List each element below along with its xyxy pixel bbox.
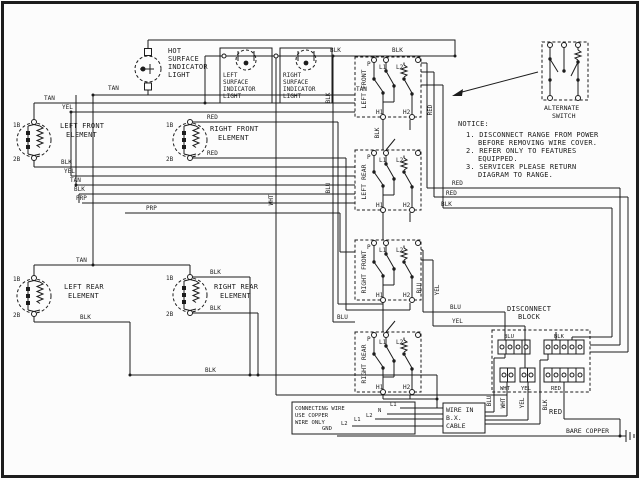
connecting-box-label: WIRE ONLY bbox=[295, 420, 325, 426]
wire-label: TAN bbox=[76, 257, 87, 264]
bx-cable-box: WIRE IN B.X. CABLE bbox=[443, 403, 485, 433]
wire-label: WHT bbox=[500, 397, 507, 408]
strip-label-wht: WHT bbox=[500, 386, 511, 392]
strip-label-yel: YEL bbox=[521, 386, 532, 392]
wire-label: RED bbox=[446, 190, 457, 197]
notice-line: BEFORE REMOVING WIRE COVER. bbox=[478, 139, 597, 147]
pin-label: P bbox=[367, 336, 371, 343]
hot-light-label: HOT bbox=[168, 47, 182, 55]
pin-label: L1 bbox=[379, 157, 387, 164]
wire-label: TAN bbox=[356, 86, 367, 93]
pin-label: P bbox=[367, 61, 371, 68]
element-name: LEFT REAR bbox=[64, 283, 104, 291]
element-name: ELEMENT bbox=[218, 134, 249, 142]
wire-label: YEL bbox=[519, 397, 526, 408]
pin-label: L1 bbox=[379, 339, 387, 346]
pin-label: H1 bbox=[376, 109, 384, 116]
wire-label: RED bbox=[452, 180, 463, 187]
strip-label-blu: BLU bbox=[504, 334, 514, 340]
element-name: ELEMENT bbox=[66, 131, 97, 139]
wire-label: RED bbox=[427, 104, 434, 115]
switch-name: LEFT REAR bbox=[360, 164, 368, 199]
wiring-diagram-page: HOT SURFACE INDICATOR LIGHT LEFT SURFACE… bbox=[0, 0, 640, 480]
terminal-label: 2B bbox=[13, 312, 21, 319]
pin-label: P bbox=[367, 244, 371, 251]
pin-label: L2 bbox=[396, 157, 404, 164]
terminal-label: 2B bbox=[13, 156, 21, 163]
wire-label: BLK bbox=[61, 159, 72, 166]
wire-label: BLU bbox=[337, 314, 348, 321]
cable-label-n: N bbox=[378, 408, 381, 414]
bx-box-label: B.X. bbox=[446, 414, 462, 422]
wire-label: BLK bbox=[392, 47, 403, 54]
cable-label-l2: L2 bbox=[366, 413, 373, 419]
wire-label: BLK bbox=[210, 305, 221, 312]
pin-label: H2 bbox=[403, 292, 411, 299]
wire-label: TAN bbox=[70, 177, 81, 184]
element-name: LEFT FRONT bbox=[60, 122, 105, 130]
pin-label: L2 bbox=[396, 339, 404, 346]
left-rear-switch: LEFT REAR P L1 L2 H1 H2 bbox=[355, 150, 421, 213]
cable-label-l2: L2 bbox=[341, 421, 348, 427]
terminal-label: 1B bbox=[13, 122, 21, 129]
left-light-label: LEFT bbox=[223, 72, 238, 79]
hot-light-label: INDICATOR bbox=[168, 63, 208, 71]
terminal-label: 1B bbox=[166, 275, 174, 282]
wire-label: BLK bbox=[205, 367, 216, 374]
hot-light-label: LIGHT bbox=[168, 71, 191, 79]
pin-label: H2 bbox=[403, 109, 411, 116]
wiring-diagram: HOT SURFACE INDICATOR LIGHT LEFT SURFACE… bbox=[0, 0, 640, 480]
pin-label: H2 bbox=[403, 384, 411, 391]
element-name: RIGHT FRONT bbox=[210, 125, 259, 133]
element-name: ELEMENT bbox=[68, 292, 99, 300]
notice-title: NOTICE: bbox=[458, 120, 489, 128]
notice-line: DIAGRAM TO RANGE. bbox=[478, 171, 553, 179]
wire-label: BLK bbox=[330, 47, 341, 54]
right-rear-switch: RIGHT REAR P L1 L2 H1 H2 bbox=[355, 332, 421, 395]
element-name: RIGHT REAR bbox=[214, 283, 259, 291]
hot-light-label: SURFACE bbox=[168, 55, 199, 63]
wire-label: BLU bbox=[450, 304, 461, 311]
wire-label: BLK bbox=[74, 186, 85, 193]
wire-label: PRP bbox=[76, 195, 87, 202]
wire-label: PRP bbox=[146, 205, 157, 212]
switch-name: RIGHT FRONT bbox=[360, 250, 368, 293]
disconnect-block: DISCONNECT BLOCK BLU BLK WHT YEL RED bbox=[492, 305, 590, 392]
strip-label-red: RED bbox=[551, 386, 561, 392]
cable-label-l1: L1 bbox=[390, 402, 397, 408]
notice-line: EQUIPPED. bbox=[478, 155, 518, 163]
right-light-label: LIGHT bbox=[283, 93, 301, 100]
right-light-label: RIGHT bbox=[283, 72, 301, 79]
left-light-label: SURFACE bbox=[223, 79, 249, 86]
notice-text: NOTICE: 1. DISCONNECT RANGE FROM POWER B… bbox=[458, 120, 599, 179]
cable-label-l1: L1 bbox=[354, 417, 361, 423]
bx-box-label: CABLE bbox=[446, 422, 466, 430]
alternate-switch-label: ALTERNATE bbox=[544, 104, 579, 112]
pin-label: H2 bbox=[403, 202, 411, 209]
right-front-switch: RIGHT FRONT P L1 L2 H1 H2 bbox=[355, 240, 421, 303]
alternate-switch-arrow bbox=[462, 72, 538, 92]
switch-name: RIGHT REAR bbox=[360, 344, 368, 383]
wire-label: BLU bbox=[416, 282, 423, 293]
notice-line: 3. SERVICER PLEASE RETURN bbox=[466, 163, 576, 171]
disconnect-block-label: BLOCK bbox=[518, 313, 541, 321]
right-light-label: INDICATOR bbox=[283, 86, 316, 93]
pin-label: H1 bbox=[376, 292, 384, 299]
notice-line: 1. DISCONNECT RANGE FROM POWER bbox=[466, 131, 599, 139]
terminal-label: 2B bbox=[166, 311, 174, 318]
wire-label: RED bbox=[207, 114, 218, 121]
left-light-label: INDICATOR bbox=[223, 86, 256, 93]
pin-label: L1 bbox=[379, 64, 387, 71]
alternate-switch: ALTERNATE SWITCH bbox=[452, 42, 588, 120]
connecting-box-label: USE COPPER bbox=[295, 413, 329, 419]
bx-box-label: WIRE IN bbox=[446, 406, 473, 414]
element-name: ELEMENT bbox=[220, 292, 251, 300]
left-front-element: 1B 2B LEFT FRONT ELEMENT bbox=[13, 120, 105, 164]
wire-label: YEL bbox=[434, 284, 441, 295]
arrowhead bbox=[452, 89, 463, 96]
pin-label: P bbox=[367, 154, 371, 161]
terminal-label: 2B bbox=[166, 156, 174, 163]
pin-label: L1 bbox=[379, 247, 387, 254]
wiring-right-rails bbox=[423, 188, 628, 368]
left-rear-element: 1B 2B LEFT REAR ELEMENT bbox=[13, 276, 104, 320]
ground-symbol bbox=[626, 430, 634, 442]
wire-label: BLK bbox=[210, 269, 221, 276]
wire-label: YEL bbox=[64, 168, 75, 175]
left-light-label: LIGHT bbox=[223, 93, 241, 100]
wire-label: BLK bbox=[374, 127, 381, 138]
pin-label: L2 bbox=[396, 64, 404, 71]
wire-label: BLK bbox=[441, 201, 452, 208]
notice-line: 2. REFER ONLY TO FEATURES bbox=[466, 147, 576, 155]
hot-surface-indicator-light: HOT SURFACE INDICATOR LIGHT bbox=[135, 47, 208, 90]
wire-label: RED bbox=[207, 150, 218, 157]
wire-label: TAN bbox=[44, 95, 55, 102]
wiring-left-buses bbox=[34, 40, 507, 395]
pin-label: H1 bbox=[376, 202, 384, 209]
wire-label: WHT bbox=[268, 194, 275, 205]
bare-copper-label: BARE COPPER bbox=[566, 427, 609, 435]
terminal-label: 1B bbox=[166, 122, 174, 129]
strip-label-blk: BLK bbox=[554, 334, 565, 340]
wire-label: BLU bbox=[486, 395, 493, 406]
connecting-box-label: CONNECTING WIRE bbox=[295, 406, 345, 412]
wire-label-red-bottom: RED bbox=[549, 408, 562, 416]
wire-label: BLU bbox=[325, 182, 332, 193]
pin-label: L2 bbox=[396, 247, 404, 254]
disconnect-block-label: DISCONNECT bbox=[507, 305, 552, 313]
wire-label: TAN bbox=[108, 85, 119, 92]
cable-label-gnd: GND bbox=[322, 426, 332, 432]
pin-label: H1 bbox=[376, 384, 384, 391]
alternate-switch-label: SWITCH bbox=[552, 112, 576, 120]
wire-label: YEL bbox=[452, 318, 463, 325]
right-light-label: SURFACE bbox=[283, 79, 309, 86]
wire-label: BLK bbox=[542, 399, 549, 410]
wire-label: BLK bbox=[80, 314, 91, 321]
wire-label: YEL bbox=[62, 104, 73, 111]
wire-label: BLK bbox=[325, 92, 332, 103]
terminal-label: 1B bbox=[13, 276, 21, 283]
connecting-wire-box: CONNECTING WIRE USE COPPER WIRE ONLY L1 … bbox=[292, 402, 415, 434]
